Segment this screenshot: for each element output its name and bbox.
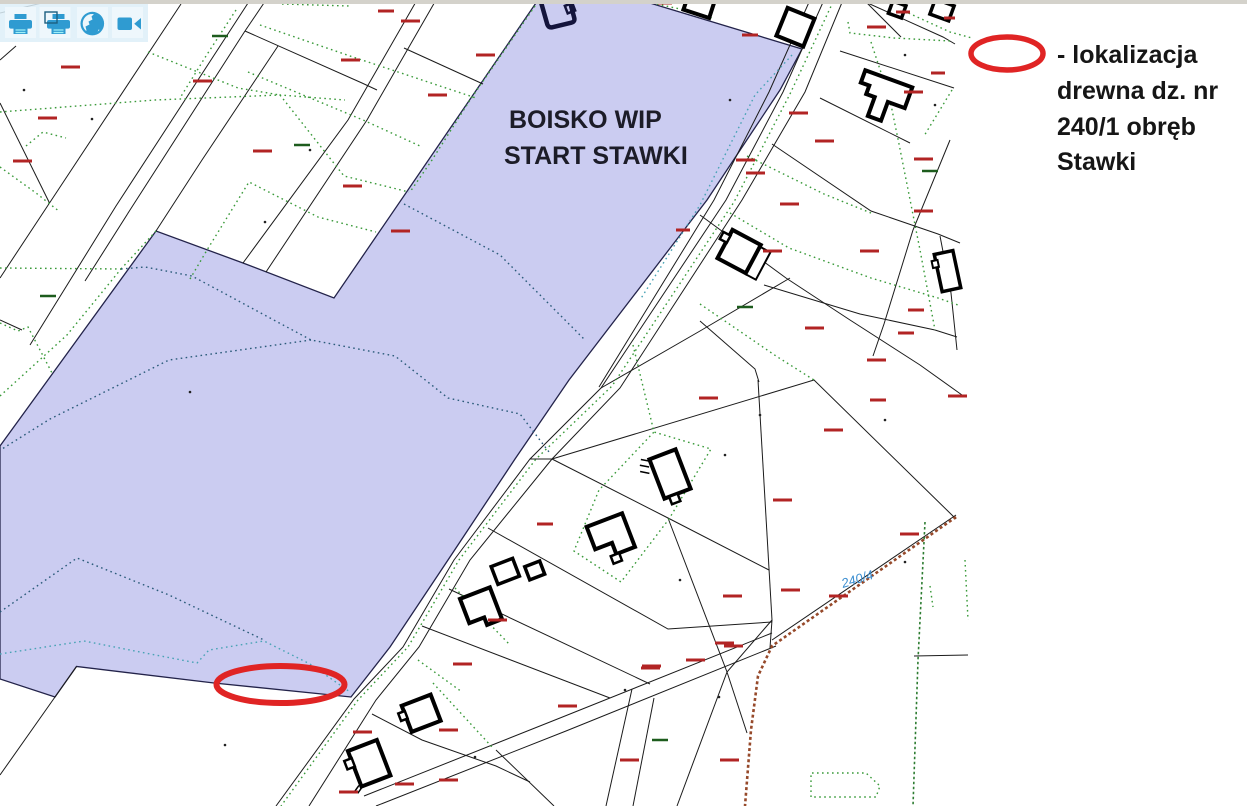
svg-text:Stawki: Stawki	[1057, 148, 1136, 176]
svg-text:BOISKO WIP: BOISKO WIP	[509, 106, 662, 134]
svg-text:240/1 obręb: 240/1 obręb	[1057, 113, 1196, 141]
svg-text:START STAWKI: START STAWKI	[504, 142, 688, 170]
svg-text:drewna dz. nr: drewna dz. nr	[1057, 77, 1218, 105]
svg-text:- lokalizacja: - lokalizacja	[1057, 41, 1198, 69]
